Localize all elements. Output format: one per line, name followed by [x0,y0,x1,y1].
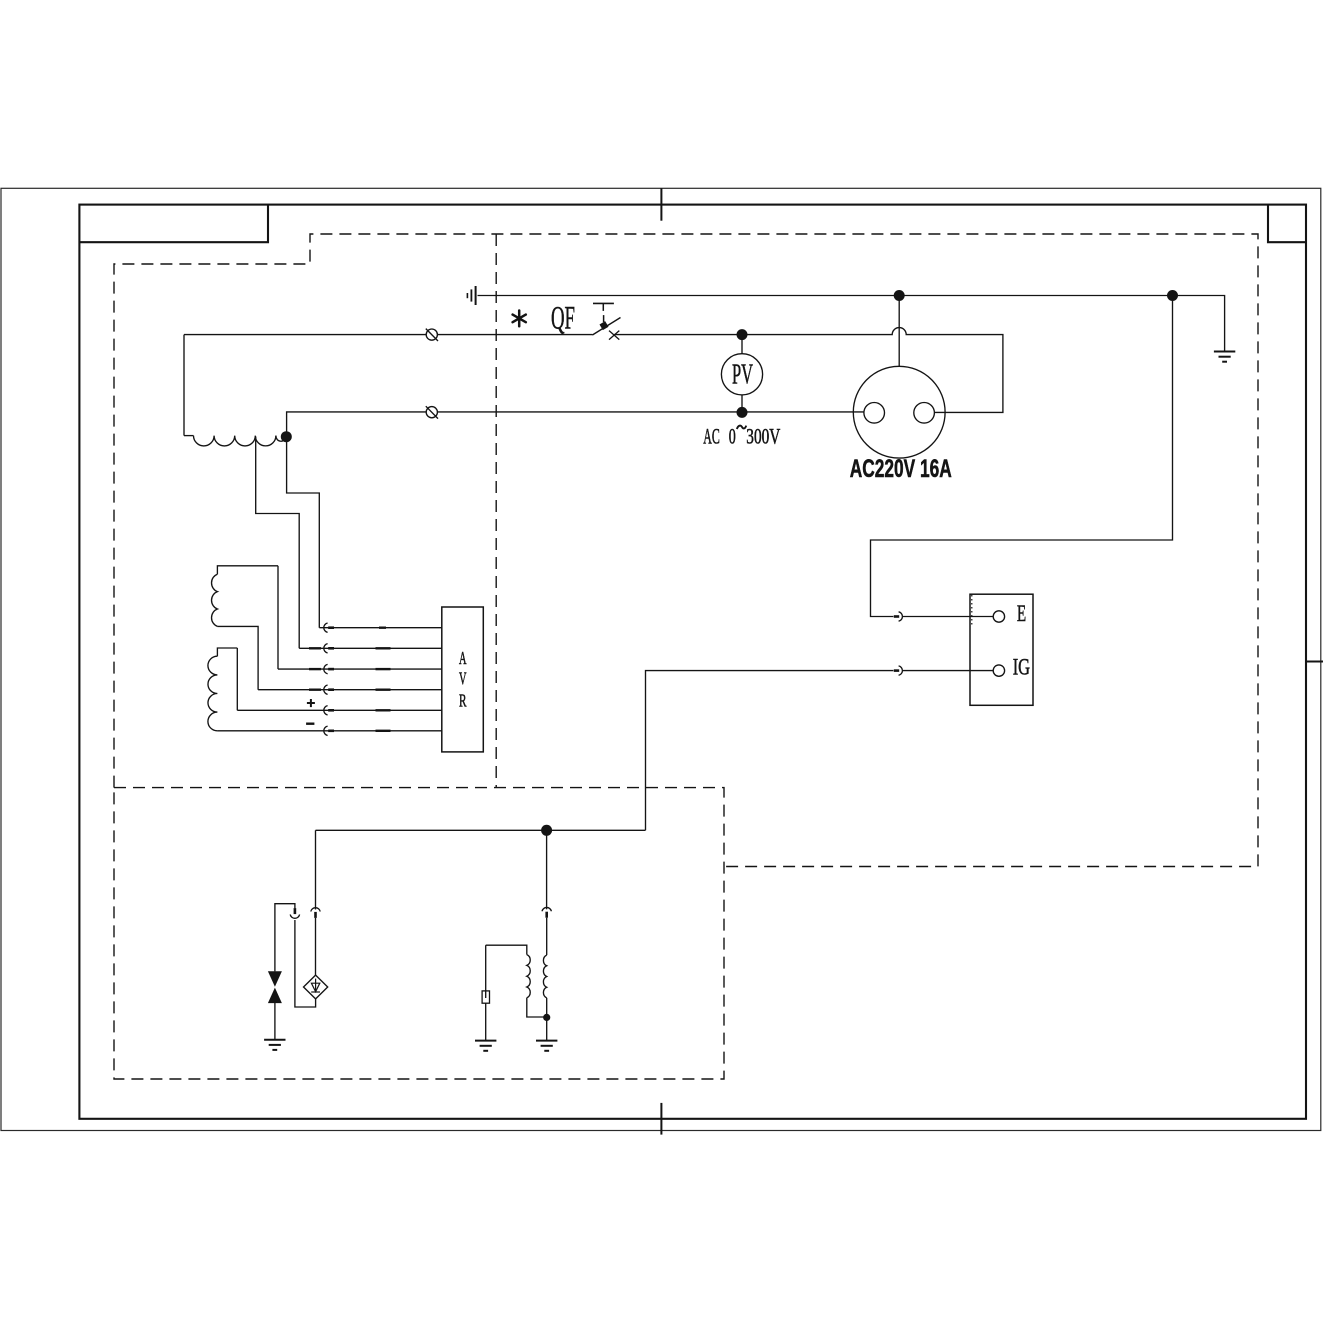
svg-text:R: R [459,691,467,711]
svg-text:300V: 300V [746,424,780,449]
svg-text:AC: AC [703,424,720,449]
svg-text:V: V [459,669,467,689]
svg-text:E: E [1017,601,1026,627]
svg-text:IG: IG [1013,655,1030,681]
svg-text:AC220V 16A: AC220V 16A [850,455,952,483]
svg-text:PV: PV [732,359,753,391]
svg-text:0: 0 [729,424,736,449]
svg-text:A: A [459,648,467,668]
svg-text:QF: QF [551,301,575,337]
